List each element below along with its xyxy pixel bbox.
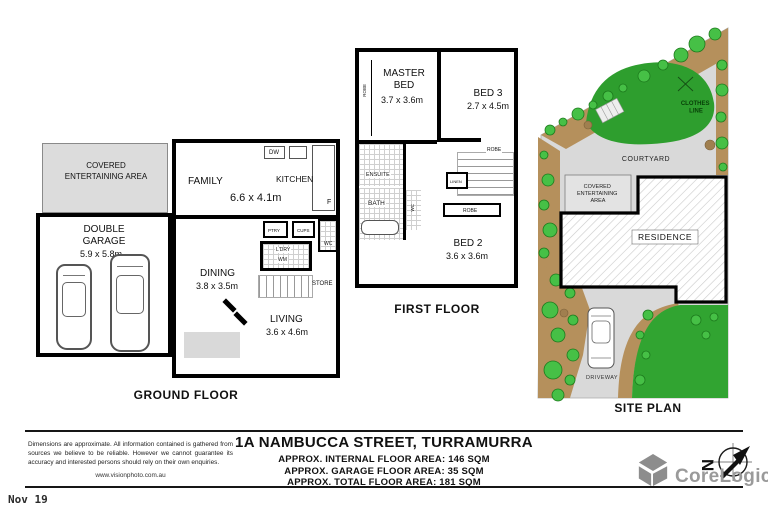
car-right-hood [117, 262, 143, 268]
robe-master-strip: ROBE [359, 60, 372, 136]
garage-area-line: APPROX. GARAGE FLOOR AREA: 35 SQM [164, 466, 604, 478]
total-area-line: APPROX. TOTAL FLOOR AREA: 181 SQM [164, 477, 604, 489]
corelogic-icon [636, 452, 670, 488]
living-label: LIVING [270, 314, 303, 325]
corelogic-wordmark: CoreLogic [675, 466, 768, 488]
robe-bed2-box: ROBE [443, 203, 501, 217]
family-dims: 6.6 x 4.1m [230, 192, 281, 204]
robe-bed2-label: ROBE [463, 208, 477, 214]
kitchen-bench [312, 145, 335, 211]
car-left [56, 264, 92, 350]
dining-label: DINING [200, 268, 235, 279]
cupboard-label: CUPS [297, 228, 310, 233]
ground-floor-title: GROUND FLOOR [96, 388, 276, 402]
fridge-label: F [327, 199, 331, 206]
wall-bed3-south [441, 138, 481, 142]
pantry-label: PTRY [268, 228, 280, 233]
bath-label: BATH [367, 200, 386, 207]
floorplan-sheet: COVERED ENTERTAINING AREA DW F FAMILY KI… [0, 0, 768, 512]
date-stamp: Nov 19 [8, 493, 48, 506]
courtyard-label: COURTYARD [622, 156, 670, 163]
address-title: 1A NAMBUCCA STREET, TURRAMURRA [164, 434, 604, 451]
dining-dims: 3.8 x 3.5m [196, 281, 238, 291]
living-dims: 3.6 x 4.6m [266, 327, 308, 337]
ensuite-label: ENSUITE [365, 172, 391, 178]
bed2-dims: 3.6 x 3.6m [446, 251, 488, 261]
dishwasher-box: DW [264, 146, 285, 159]
internal-area-line: APPROX. INTERNAL FLOOR AREA: 146 SQM [164, 454, 604, 466]
car-right [110, 254, 150, 352]
cupboard-box: CUPS [292, 221, 315, 238]
master-bed-label: MASTER BED [378, 68, 430, 92]
wc-room-first: WC [406, 190, 421, 230]
divider-top [25, 430, 743, 432]
sink-box [289, 146, 307, 159]
site-plan-map: CLOTHES LINE COURTYARD COVERED ENTERTAIN… [528, 25, 768, 420]
garage-label: DOUBLE GARAGE [66, 224, 142, 248]
store-label: STORE [312, 281, 333, 287]
bath-room: BATH [359, 188, 403, 240]
bathtub [361, 220, 399, 235]
pantry-box: PTRY [263, 221, 288, 238]
wc-room-ground: WC [318, 219, 338, 252]
site-plan-title: SITE PLAN [528, 401, 768, 415]
covered-entertaining-area: COVERED ENTERTAINING AREA [42, 143, 168, 213]
residence-label: RESIDENCE [638, 232, 692, 242]
wc-label-ground: WC [324, 241, 332, 247]
washing-machine-label: WM [277, 257, 288, 263]
driveway-label: DRIVEWAY [586, 375, 618, 381]
laundry-room: L'DRY WM [260, 241, 312, 271]
stairs-ground [258, 275, 313, 298]
bed3-label: BED 3 [462, 88, 514, 99]
robe-master-label: ROBE [362, 84, 367, 97]
covered-area-label: COVERED ENTERTAINING AREA [61, 160, 151, 182]
bed3-dims: 2.7 x 4.5m [467, 101, 509, 111]
wc-label-first: WC [410, 204, 415, 212]
car-left-hood [63, 271, 85, 276]
master-bed-dims: 3.7 x 3.6m [381, 95, 423, 105]
corelogic-logo: CoreLogic [636, 452, 768, 488]
car-left-cabin [62, 282, 86, 316]
entry-porch [184, 332, 240, 358]
linen-label: LINEN [450, 179, 462, 184]
dishwasher-label: DW [269, 150, 279, 156]
bed2-label: BED 2 [438, 238, 498, 249]
linen-box: LINEN [446, 172, 468, 189]
address-block: 1A NAMBUCCA STREET, TURRAMURRA APPROX. I… [164, 434, 604, 489]
first-floor-title: FIRST FLOOR [352, 302, 522, 316]
ensuite-room: ENSUITE [359, 144, 403, 186]
wall-master-bed3 [437, 52, 441, 142]
laundry-label: L'DRY [275, 247, 291, 253]
kitchen-label: KITCHEN [276, 174, 313, 184]
family-label: FAMILY [188, 176, 223, 187]
site-car [588, 308, 614, 368]
car-right-cabin [116, 275, 144, 314]
robe-bed3-label: ROBE [486, 147, 502, 153]
